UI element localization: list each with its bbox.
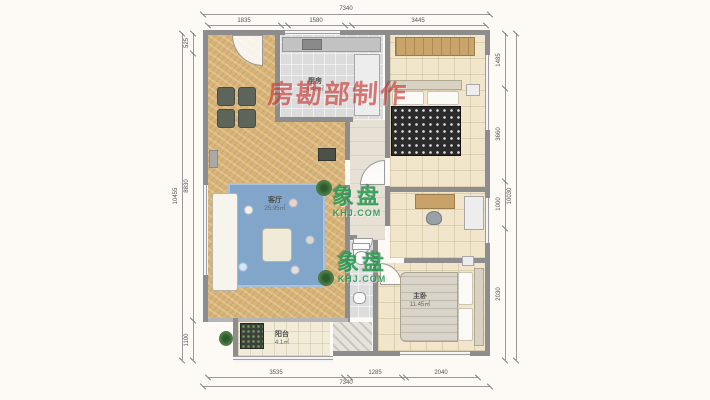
dining-chair bbox=[238, 109, 256, 128]
master-label: 主卧 11.45㎡ bbox=[398, 293, 442, 309]
wall-bedroom-bottom bbox=[385, 187, 490, 192]
dim-right-seg4: 2030 bbox=[496, 274, 502, 314]
dim-bottom-seg1: 3535 bbox=[269, 370, 282, 376]
dim-right-seg3: 1000 bbox=[496, 184, 502, 224]
brand-site-text: KHJ.COM bbox=[330, 274, 394, 286]
brand-watermark: 象盘 KHJ.COM bbox=[325, 186, 389, 220]
wall-left bbox=[203, 30, 208, 322]
coffee-table bbox=[262, 228, 292, 262]
study-window bbox=[485, 198, 490, 243]
dining-chair bbox=[217, 109, 235, 128]
wardrobe bbox=[395, 37, 475, 56]
master-bed-pillow bbox=[458, 272, 473, 305]
bed-blanket bbox=[391, 106, 461, 156]
maker-watermark: 房勘部制作 bbox=[267, 74, 410, 111]
dim-line-top-total bbox=[203, 14, 490, 15]
brand-name-text: 象盘 bbox=[330, 252, 394, 274]
balcony-planter bbox=[240, 323, 264, 349]
kitchen-sink bbox=[302, 39, 322, 50]
nightstand bbox=[466, 84, 480, 96]
living-window bbox=[203, 185, 208, 275]
dim-left-seg1: 525 bbox=[184, 23, 190, 63]
master-area: 11.45㎡ bbox=[398, 302, 442, 310]
dim-line-bottom-total bbox=[203, 386, 490, 387]
dim-left-total: 10455 bbox=[173, 176, 179, 216]
dim-line-left-seg bbox=[193, 33, 194, 360]
balcony-label: 阳台 4.1㎡ bbox=[262, 331, 302, 347]
sofa bbox=[212, 193, 238, 291]
master-bed-pillow bbox=[458, 308, 473, 341]
dim-line-left-total bbox=[182, 33, 183, 360]
dim-line-right-total bbox=[516, 33, 517, 360]
dim-top-seg1: 1835 bbox=[237, 18, 250, 24]
dim-top-seg2: 1580 bbox=[309, 18, 322, 24]
dim-right-seg2: 3660 bbox=[496, 114, 502, 154]
dim-left-seg3: 1100 bbox=[184, 320, 190, 360]
dim-top-seg3: 3445 bbox=[411, 18, 424, 24]
balcony-name: 阳台 bbox=[262, 331, 302, 340]
dim-bottom-total: 7340 bbox=[339, 380, 352, 386]
desk bbox=[415, 194, 455, 209]
master-bed-headboard bbox=[474, 268, 484, 346]
living-area: 25.95㎡ bbox=[253, 206, 297, 214]
dim-line-right-seg bbox=[505, 33, 506, 360]
brand-name-text: 象盘 bbox=[325, 186, 389, 208]
floorplan-canvas: 厨房 4.46㎡ 客厅 25.95㎡ 主卧 11.45㎡ 阳台 4.1㎡ 房勘部… bbox=[0, 0, 710, 400]
toilet-tank bbox=[352, 243, 370, 250]
bathroom-sink bbox=[353, 292, 366, 304]
dim-left-seg2: 8830 bbox=[184, 166, 190, 206]
brand-site-text: KHJ.COM bbox=[325, 208, 389, 220]
wall-living-balcony bbox=[208, 318, 348, 322]
balcony-area: 4.1㎡ bbox=[262, 340, 302, 348]
wall-kitchen-bottom bbox=[275, 117, 353, 122]
living-label: 客厅 25.95㎡ bbox=[253, 197, 297, 213]
kitchen-window bbox=[285, 30, 340, 35]
master-name: 主卧 bbox=[398, 293, 442, 302]
dining-chair bbox=[217, 87, 235, 106]
dim-bottom-seg2: 1285 bbox=[368, 370, 381, 376]
balcony-window bbox=[233, 356, 333, 362]
dim-right-total: 10030 bbox=[507, 176, 513, 216]
brand-watermark: 象盘 KHJ.COM bbox=[330, 252, 394, 286]
bed-pillow bbox=[427, 91, 459, 105]
master-nightstand bbox=[462, 256, 474, 266]
study-cabinet bbox=[464, 196, 484, 230]
dim-bottom-seg3: 2040 bbox=[434, 370, 447, 376]
living-name: 客厅 bbox=[253, 197, 297, 206]
wall-center-upper bbox=[345, 120, 350, 160]
dining-chair bbox=[238, 87, 256, 106]
master-window bbox=[400, 351, 470, 356]
dim-right-seg1: 1485 bbox=[496, 40, 502, 80]
plant-icon bbox=[219, 331, 233, 346]
desk-chair bbox=[426, 211, 442, 225]
kitchen-counter bbox=[282, 37, 381, 52]
bedroom-window bbox=[485, 55, 490, 130]
water-heater bbox=[209, 150, 218, 168]
wall-study-bottom bbox=[404, 258, 490, 263]
shoe-cabinet bbox=[318, 148, 336, 161]
dim-top-total: 7340 bbox=[339, 6, 352, 12]
